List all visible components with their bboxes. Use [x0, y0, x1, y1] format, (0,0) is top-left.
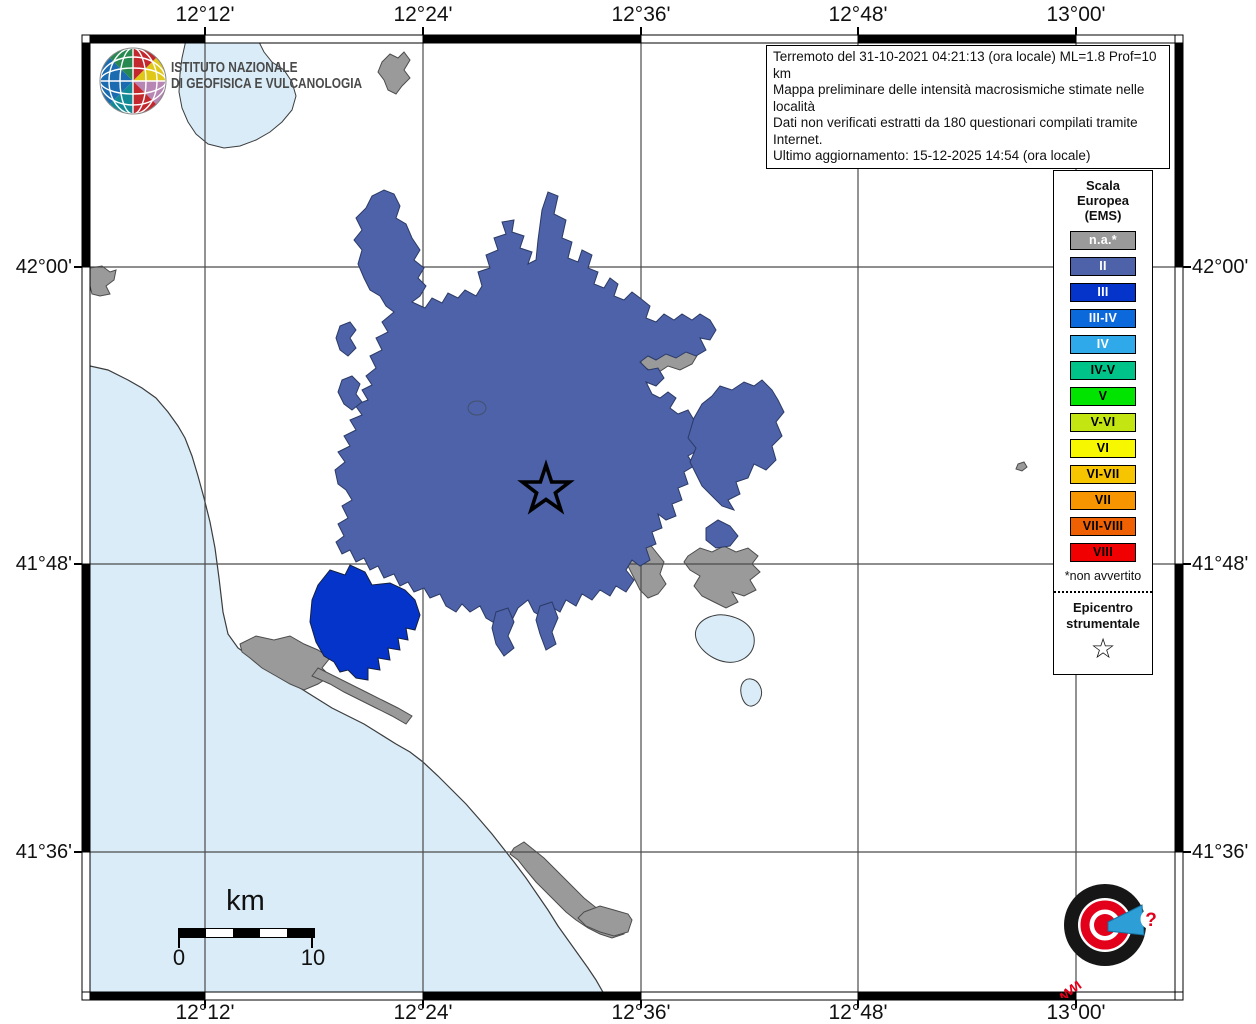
scale-bar-min: 0: [157, 945, 201, 971]
legend-swatch-iv-v: IV-V: [1070, 361, 1136, 380]
legend-swatch-v: V: [1070, 387, 1136, 406]
lat-label-right-3: 41°36': [1192, 841, 1248, 864]
enclave-outline: [468, 401, 486, 415]
legend-swatch-iii-iv: III-IV: [1070, 309, 1136, 328]
legend-swatch-viii: VIII: [1070, 543, 1136, 562]
legend-swatch-vi-vii: VI-VII: [1070, 465, 1136, 484]
lon-label-top-4: 12°48': [798, 3, 918, 27]
event-info-line1: Terremoto del 31-10-2021 04:21:13 (ora l…: [773, 49, 1163, 82]
lon-label-top-2: 12°24': [363, 3, 483, 27]
scale-bar-max: 10: [291, 945, 335, 971]
lon-label-top-1: 12°12': [145, 3, 265, 27]
ingv-line2: DI GEOFISICA E VULCANOLOGIA: [171, 76, 362, 92]
scale-bar: km 0 10: [150, 885, 360, 980]
ingv-line1: ISTITUTO NAZIONALE: [171, 60, 362, 76]
logo-question-mark: ?: [1145, 910, 1157, 931]
legend-epicenter-star-icon: ☆: [1054, 634, 1152, 664]
event-info-line3: Dati non verificati estratti da 180 ques…: [773, 115, 1163, 148]
legend-swatch-vi: VI: [1070, 439, 1136, 458]
event-info-line4: Ultimo aggiornamento: 15-12-2025 14:54 (…: [773, 148, 1163, 165]
event-info-line2: Mappa preliminare delle intensità macros…: [773, 82, 1163, 115]
haisentitoilterremoto-logo: ? www.haisentitoilterremoto.it: [1032, 852, 1178, 998]
map-content: [90, 33, 1175, 1000]
legend-footnote: *non avvertito: [1054, 569, 1152, 583]
scale-bar-unit: km: [178, 885, 313, 918]
legend-box: Scala Europea (EMS) n.a.* II III III-IV …: [1053, 170, 1153, 675]
logo-circular-text: www.haisentitoilterremoto.it: [1041, 977, 1166, 998]
lat-label-left-2: 41°48': [0, 553, 72, 576]
lat-label-left-1: 42°00': [0, 256, 72, 279]
scale-bar-segments: [178, 928, 315, 938]
lon-label-bottom-2: 12°24': [363, 1001, 483, 1024]
ingv-wordmark: ISTITUTO NAZIONALE DI GEOFISICA E VULCAN…: [171, 60, 362, 92]
lat-label-left-3: 41°36': [0, 841, 72, 864]
lake-nemi: [741, 679, 762, 706]
ingv-globe-icon: [98, 46, 168, 116]
event-info-box: Terremoto del 31-10-2021 04:21:13 (ora l…: [766, 45, 1170, 169]
legend-swatch-vii-viii: VII-VIII: [1070, 517, 1136, 536]
lon-label-bottom-3: 12°36': [581, 1001, 701, 1024]
legend-swatch-na: n.a.*: [1070, 231, 1136, 250]
legend-title: Scala Europea (EMS): [1054, 178, 1152, 223]
macroseismic-map-page: 12°12' 12°24' 12°36' 12°48' 13°00' 12°12…: [0, 0, 1256, 1024]
legend-swatch-iv: IV: [1070, 335, 1136, 354]
lon-label-bottom-4: 12°48': [798, 1001, 918, 1024]
lon-label-bottom-5: 13°00': [1016, 1001, 1136, 1024]
lat-label-right-1: 42°00': [1192, 256, 1248, 279]
logo-text-www: www.: [1045, 977, 1085, 998]
lon-label-bottom-1: 12°12': [145, 1001, 265, 1024]
legend-swatch-iii: III: [1070, 283, 1136, 302]
legend-divider: [1054, 591, 1152, 593]
legend-swatch-ii: II: [1070, 257, 1136, 276]
legend-swatch-v-vi: V-VI: [1070, 413, 1136, 432]
ingv-logo: ISTITUTO NAZIONALE DI GEOFISICA E VULCAN…: [98, 46, 458, 118]
lon-label-top-3: 12°36': [581, 3, 701, 27]
lon-label-top-5: 13°00': [1016, 3, 1136, 27]
lat-label-right-2: 41°48': [1192, 553, 1248, 576]
legend-epicenter-label: Epicentro strumentale: [1054, 600, 1152, 632]
legend-swatch-vii: VII: [1070, 491, 1136, 510]
